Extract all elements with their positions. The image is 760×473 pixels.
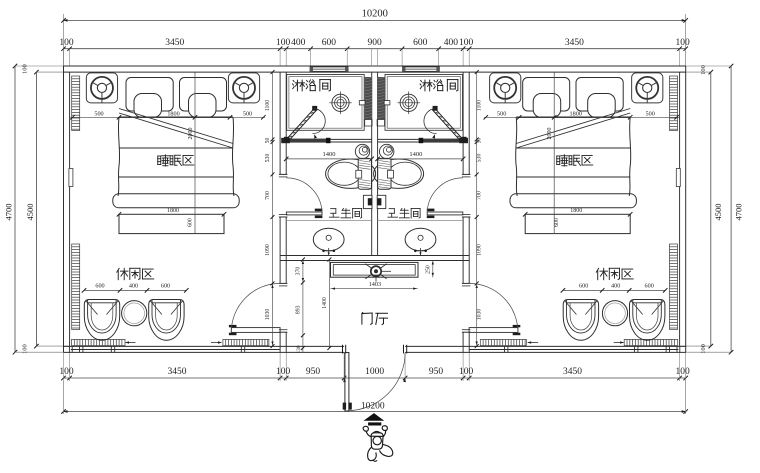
- svg-text:3450: 3450: [168, 367, 187, 377]
- svg-text:100: 100: [459, 38, 474, 48]
- svg-text:500: 500: [94, 110, 103, 117]
- svg-text:10200: 10200: [362, 9, 388, 20]
- svg-text:400: 400: [129, 282, 138, 289]
- svg-text:100: 100: [459, 367, 474, 377]
- svg-text:600: 600: [413, 38, 428, 48]
- svg-text:530: 530: [265, 154, 271, 163]
- svg-text:100: 100: [59, 38, 74, 48]
- svg-text:4500: 4500: [25, 204, 35, 221]
- svg-text:1030: 1030: [477, 309, 483, 321]
- svg-text:1090: 1090: [477, 244, 483, 256]
- svg-text:700: 700: [477, 191, 483, 200]
- svg-text:1400: 1400: [409, 151, 422, 158]
- svg-text:1100: 1100: [477, 100, 483, 111]
- svg-text:1800: 1800: [167, 208, 179, 214]
- svg-text:1030: 1030: [265, 309, 271, 321]
- svg-text:100: 100: [22, 344, 29, 354]
- svg-text:130: 130: [296, 345, 302, 353]
- svg-text:1000: 1000: [365, 367, 384, 377]
- svg-text:4700: 4700: [733, 204, 743, 221]
- svg-text:950: 950: [429, 367, 444, 377]
- svg-text:530: 530: [477, 154, 483, 163]
- svg-text:1090: 1090: [265, 244, 271, 256]
- svg-text:600: 600: [554, 218, 560, 227]
- svg-text:1100: 1100: [265, 100, 271, 111]
- svg-text:500: 500: [497, 110, 506, 117]
- svg-text:400: 400: [611, 282, 620, 289]
- svg-text:900: 900: [367, 38, 382, 48]
- svg-text:500: 500: [243, 110, 252, 117]
- svg-text:893: 893: [295, 305, 301, 314]
- svg-text:100: 100: [59, 367, 74, 377]
- svg-text:370: 370: [295, 267, 301, 276]
- svg-text:4500: 4500: [713, 204, 723, 221]
- svg-text:100: 100: [700, 344, 707, 354]
- svg-text:600: 600: [322, 38, 337, 48]
- svg-text:600: 600: [645, 282, 654, 289]
- svg-text:100: 100: [675, 38, 690, 48]
- svg-text:100: 100: [700, 65, 707, 75]
- svg-text:1800: 1800: [167, 110, 179, 117]
- svg-text:250: 250: [425, 265, 431, 274]
- svg-text:400: 400: [444, 38, 459, 48]
- svg-text:500: 500: [646, 110, 655, 117]
- svg-text:2000: 2000: [188, 128, 194, 140]
- svg-text:400: 400: [291, 38, 306, 48]
- svg-text:3450: 3450: [165, 38, 184, 48]
- svg-text:600: 600: [579, 282, 588, 289]
- svg-text:3450: 3450: [565, 38, 584, 48]
- svg-text:100: 100: [22, 64, 29, 74]
- svg-text:100: 100: [276, 38, 291, 48]
- svg-text:600: 600: [95, 282, 104, 289]
- svg-text:100: 100: [675, 367, 690, 377]
- svg-text:1400: 1400: [323, 151, 336, 158]
- svg-text:50: 50: [477, 138, 483, 144]
- svg-text:100: 100: [276, 367, 291, 377]
- svg-text:950: 950: [306, 367, 321, 377]
- svg-text:3450: 3450: [563, 367, 582, 377]
- svg-text:10200: 10200: [361, 401, 385, 411]
- svg-text:1800: 1800: [570, 110, 582, 117]
- svg-text:1400: 1400: [322, 297, 328, 309]
- svg-text:4700: 4700: [4, 204, 14, 221]
- svg-text:1403: 1403: [369, 281, 381, 288]
- svg-text:700: 700: [265, 191, 271, 200]
- svg-text:50: 50: [265, 138, 271, 144]
- svg-text:2000: 2000: [547, 128, 553, 140]
- svg-text:600: 600: [161, 282, 170, 289]
- svg-text:1800: 1800: [570, 208, 582, 214]
- svg-text:600: 600: [188, 218, 194, 227]
